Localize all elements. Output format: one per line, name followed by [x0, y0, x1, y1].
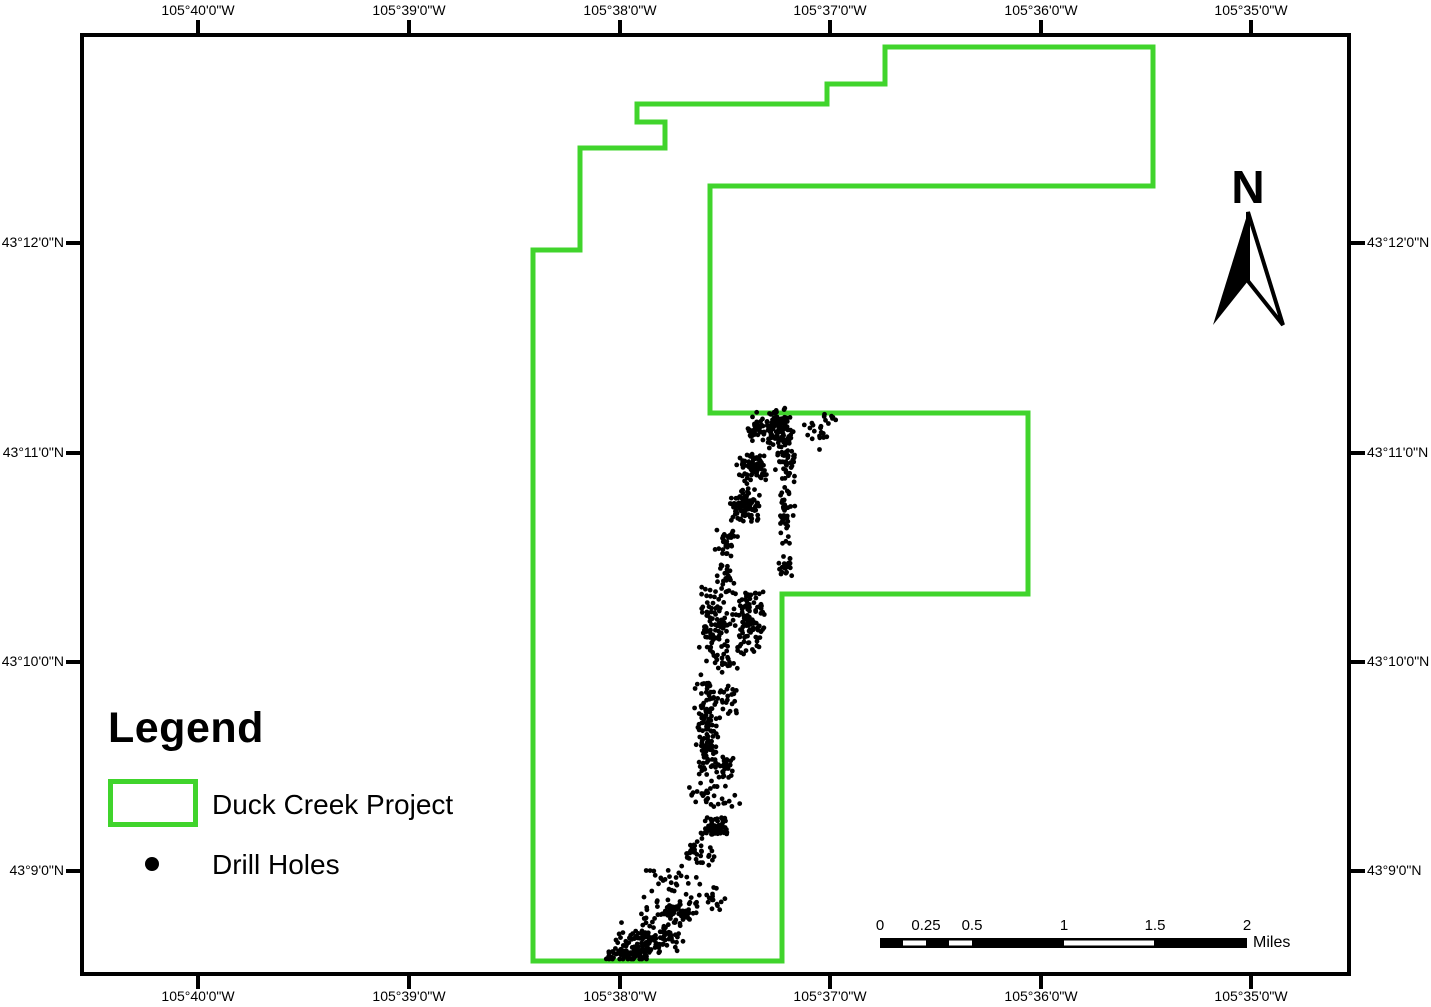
map-page: 105°40'0"W 105°39'0"W 105°38'0"W 105°37'… — [0, 0, 1431, 1007]
north-arrow-icon — [1213, 212, 1283, 325]
graticule-ticks-top — [198, 20, 1251, 35]
scale-bar-label: 0 — [876, 917, 884, 934]
graticule-label-bottom: 105°37'0"W — [793, 988, 866, 1005]
graticule-label-right: 43°12'0"N — [1367, 234, 1429, 251]
graticule-ticks-bottom — [198, 974, 1251, 989]
scale-bar-label: 2 — [1243, 917, 1251, 934]
graticule-ticks-right — [1350, 243, 1365, 871]
drill-holes-symbol — [145, 857, 159, 871]
graticule-label-right: 43°9'0"N — [1367, 862, 1422, 879]
legend-item-label: Duck Creek Project — [212, 789, 453, 821]
graticule-label-bottom: 105°35'0"W — [1214, 988, 1287, 1005]
graticule-label-bottom: 105°40'0"W — [161, 988, 234, 1005]
scale-bar-label: 1.5 — [1145, 917, 1166, 934]
graticule-label-top: 105°35'0"W — [1214, 2, 1287, 19]
graticule-label-bottom: 105°38'0"W — [583, 988, 656, 1005]
graticule-label-top: 105°38'0"W — [583, 2, 656, 19]
graticule-label-left: 43°10'0"N — [0, 653, 64, 670]
legend-title: Legend — [108, 704, 264, 753]
scale-bar-label: 1 — [1060, 917, 1068, 934]
north-arrow-label: N — [1231, 160, 1264, 214]
graticule-label-right: 43°10'0"N — [1367, 653, 1429, 670]
project-boundary — [533, 47, 1153, 961]
graticule-label-top: 105°39'0"W — [372, 2, 445, 19]
graticule-label-bottom: 105°39'0"W — [372, 988, 445, 1005]
graticule-label-left: 43°11'0"N — [0, 444, 64, 461]
graticule-label-top: 105°37'0"W — [793, 2, 866, 19]
graticule-label-bottom: 105°36'0"W — [1004, 988, 1077, 1005]
graticule-label-left: 43°9'0"N — [0, 862, 64, 879]
scale-bar — [880, 938, 1247, 948]
graticule-label-top: 105°40'0"W — [161, 2, 234, 19]
scale-bar-unit: Miles — [1253, 934, 1290, 952]
graticule-label-top: 105°36'0"W — [1004, 2, 1077, 19]
graticule-label-right: 43°11'0"N — [1367, 444, 1428, 461]
legend-item-label: Drill Holes — [212, 849, 340, 881]
project-boundary-swatch — [108, 779, 198, 827]
graticule-ticks-left — [66, 243, 81, 871]
graticule-label-left: 43°12'0"N — [0, 234, 64, 251]
drill-holes-layer — [604, 406, 838, 962]
scale-bar-label: 0.5 — [962, 917, 983, 934]
scale-bar-label: 0.25 — [911, 917, 940, 934]
